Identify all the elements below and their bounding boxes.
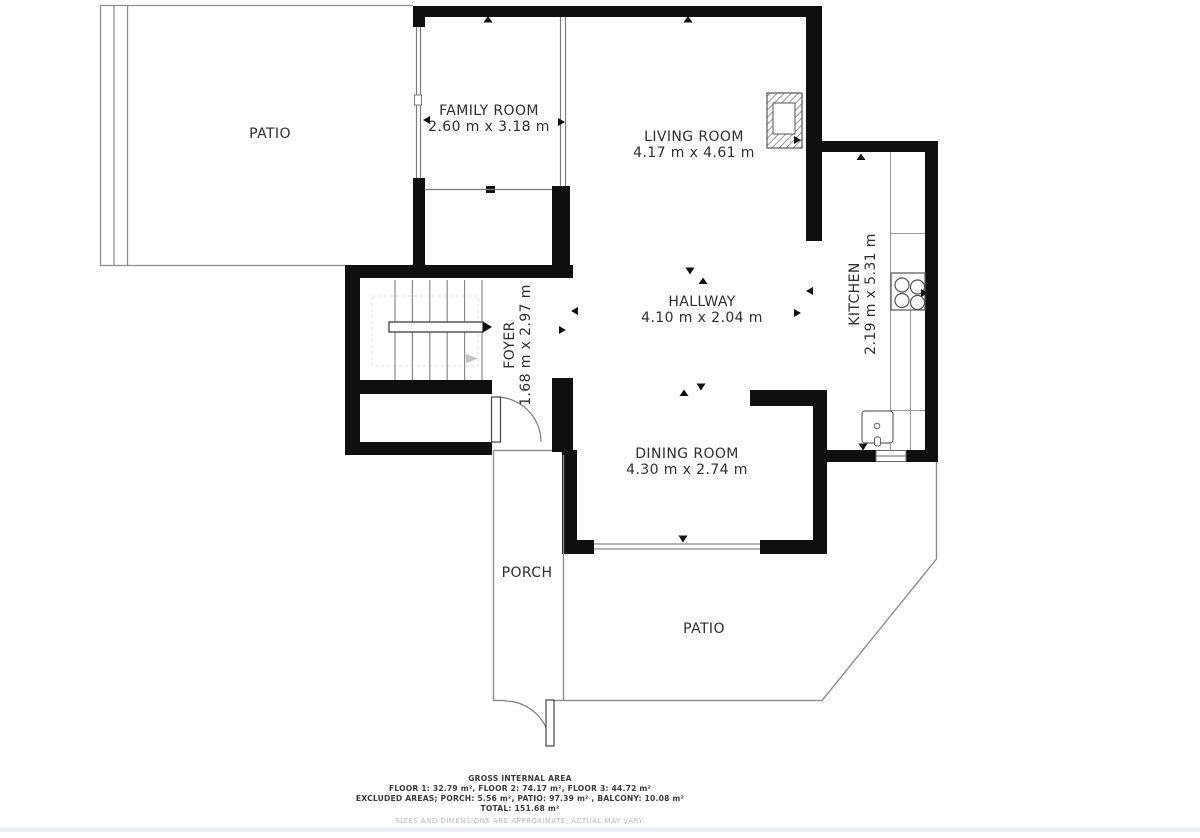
room-dims: 4.17 m x 4.61 m	[633, 145, 755, 161]
area-summary-excluded: EXCLUDED AREAS; PORCH: 5.56 m², PATIO: 9…	[280, 794, 760, 804]
room-dims: 4.30 m x 2.74 m	[626, 462, 748, 478]
room-name: DINING ROOM	[626, 446, 748, 462]
room-name: PATIO	[249, 126, 291, 142]
porch-door	[505, 700, 554, 746]
room-label-living-room: LIVING ROOM 4.17 m x 4.61 m	[633, 129, 755, 161]
area-summary: GROSS INTERNAL AREA FLOOR 1: 32.79 m², F…	[280, 774, 760, 826]
area-summary-disclaimer: SIZES AND DIMENSIONS ARE APPROXIMATE, AC…	[280, 816, 760, 826]
room-name: HALLWAY	[641, 294, 763, 310]
room-label-kitchen: KITCHEN 2.19 m x 5.31 m	[847, 233, 879, 355]
room-label-family-room: FAMILY ROOM 2.60 m x 3.18 m	[428, 103, 550, 135]
room-dims: 2.19 m x 5.31 m	[863, 233, 879, 355]
sink	[862, 411, 893, 446]
room-label-dining-room: DINING ROOM 4.30 m x 2.74 m	[626, 446, 748, 478]
room-label-patio-bottom: PATIO	[683, 621, 725, 637]
area-summary-title: GROSS INTERNAL AREA	[280, 774, 760, 784]
stair-direction-arrow	[483, 322, 492, 333]
sliding-door	[594, 544, 760, 549]
area-summary-total: TOTAL: 151.68 m²	[280, 804, 760, 814]
room-dims: 1.68 m x 2.97 m	[518, 284, 534, 406]
room-name: LIVING ROOM	[633, 129, 755, 145]
stair-handrail	[389, 322, 483, 332]
room-name: PATIO	[683, 621, 725, 637]
kitchen-window	[876, 451, 906, 462]
floorplan-drawing	[0, 0, 1200, 838]
floorplan-page: PATIO FAMILY ROOM 2.60 m x 3.18 m LIVING…	[0, 0, 1200, 838]
room-label-patio-top: PATIO	[249, 126, 291, 142]
patio-bottom-outline	[564, 462, 937, 701]
room-label-porch: PORCH	[502, 565, 553, 581]
room-name: FAMILY ROOM	[428, 103, 550, 119]
room-label-hallway: HALLWAY 4.10 m x 2.04 m	[641, 294, 763, 326]
image-edge-band	[0, 828, 1200, 832]
stairs	[372, 280, 492, 380]
area-summary-floors: FLOOR 1: 32.79 m², FLOOR 2: 74.17 m², FL…	[280, 784, 760, 794]
room-dims: 4.10 m x 2.04 m	[641, 310, 763, 326]
stove	[891, 273, 925, 310]
room-name: KITCHEN	[847, 233, 863, 355]
room-label-foyer: FOYER 1.68 m x 2.97 m	[502, 284, 534, 406]
room-name: PORCH	[502, 565, 553, 581]
room-dims: 2.60 m x 3.18 m	[428, 119, 550, 135]
room-name: FOYER	[502, 284, 518, 406]
